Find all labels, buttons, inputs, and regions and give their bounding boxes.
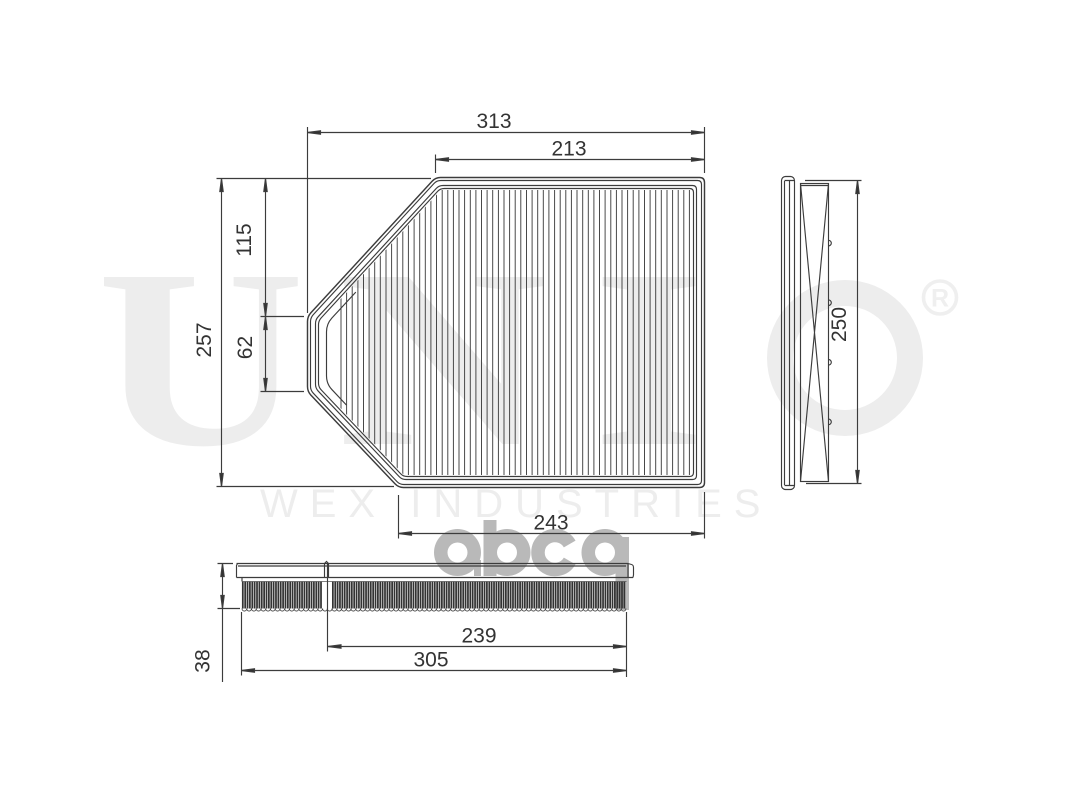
svg-text:257: 257 (193, 322, 216, 357)
svg-text:250: 250 (828, 307, 851, 342)
svg-text:38: 38 (192, 649, 215, 672)
svg-text:305: 305 (413, 649, 448, 672)
svg-text:62: 62 (234, 336, 257, 359)
svg-text:I: I (593, 217, 705, 499)
svg-text:115: 115 (233, 223, 256, 256)
svg-text:R: R (931, 285, 949, 313)
svg-text:213: 213 (551, 138, 586, 161)
svg-text:239: 239 (461, 625, 496, 648)
svg-text:WEX INDUSTRIES: WEX INDUSTRIES (260, 482, 772, 526)
svg-text:243: 243 (533, 512, 568, 535)
svg-text:313: 313 (476, 110, 511, 133)
